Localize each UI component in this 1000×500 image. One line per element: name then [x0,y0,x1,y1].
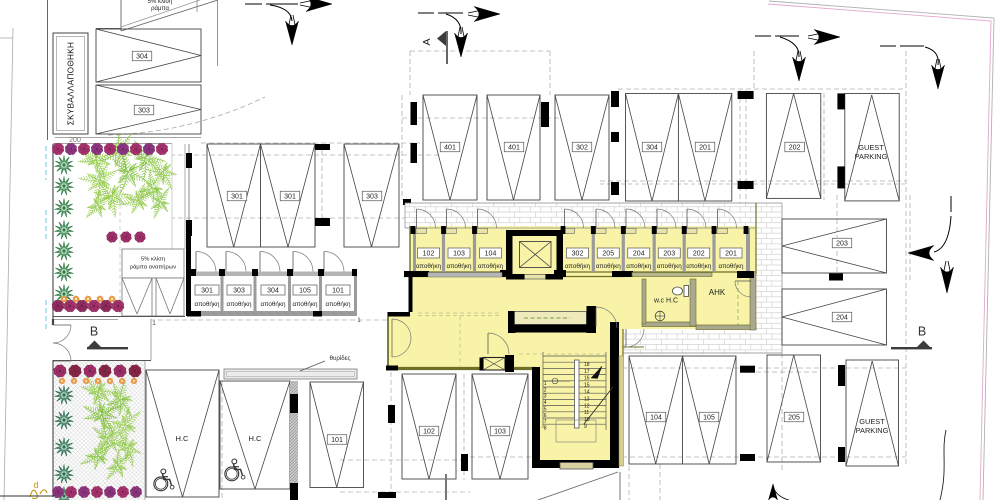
svg-text:5: 5 [544,406,547,412]
svg-text:8: 8 [544,425,547,431]
svg-text:αποθήκη: αποθήκη [596,263,622,270]
svg-text:A: A [421,38,433,45]
svg-text:ΣΚΥΒΑΛΛΑΠΟΘΗΚΗ: ΣΚΥΒΑΛΛΑΠΟΘΗΚΗ [67,42,76,125]
svg-text:103: 103 [494,429,506,436]
svg-text:401: 401 [444,145,456,152]
svg-text:303: 303 [138,108,150,115]
svg-text:203: 203 [836,241,848,248]
svg-text:14: 14 [584,390,590,396]
svg-text:θυρίδες: θυρίδες [330,355,351,362]
svg-text:4: 4 [544,400,547,406]
svg-text:H.C: H.C [176,434,190,443]
svg-text:6: 6 [544,413,547,419]
svg-text:203: 203 [663,251,675,258]
svg-text:104: 104 [650,415,662,422]
svg-text:104: 104 [485,251,497,258]
svg-text:103: 103 [453,251,465,258]
svg-text:9: 9 [584,424,587,430]
svg-text:PARKING: PARKING [855,152,888,161]
svg-text:5% κλίση: 5% κλίση [141,257,165,263]
svg-text:d: d [33,480,38,490]
svg-text:105: 105 [703,415,715,422]
svg-text:αποθήκη: αποθήκη [292,301,318,308]
svg-text:201: 201 [699,145,711,152]
svg-text:15: 15 [584,383,590,389]
svg-text:101: 101 [332,288,344,295]
svg-text:αποθήκη: αποθήκη [194,301,220,308]
svg-text:αποθήκη: αποθήκη [718,263,744,270]
svg-text:AHK: AHK [709,288,726,297]
svg-text:304: 304 [267,288,279,295]
svg-text:301: 301 [231,194,243,201]
svg-text:11: 11 [584,410,589,416]
svg-text:B: B [90,325,98,339]
svg-text:αποθήκη: αποθήκη [260,301,286,308]
svg-text:304: 304 [646,145,658,152]
svg-text:204: 204 [633,251,645,258]
svg-text:202: 202 [789,145,801,152]
svg-text:w.c H.C: w.c H.C [653,298,678,305]
svg-text:301: 301 [201,288,213,295]
svg-text:205: 205 [788,415,800,422]
svg-text:7: 7 [544,419,547,425]
svg-text:204: 204 [836,315,848,322]
svg-text:αποθήκη: αποθήκη [226,301,252,308]
svg-text:13: 13 [584,396,590,402]
svg-text:αποθήκη: αποθήκη [686,263,712,270]
svg-text:5% κλίση: 5% κλίση [148,0,173,5]
svg-text:αποθήκη: αποθήκη [446,263,472,270]
svg-text:αποθήκη: αποθήκη [325,301,351,308]
svg-text:105: 105 [299,288,311,295]
svg-text:102: 102 [423,429,435,436]
svg-text:101: 101 [331,437,343,444]
svg-text:17: 17 [584,369,590,375]
svg-text:αποθήκη: αποθήκη [416,263,442,270]
svg-text:GUEST: GUEST [859,417,885,426]
svg-text:αποθήκη: αποθήκη [657,263,683,270]
svg-text:B: B [918,325,926,339]
svg-text:PARKING: PARKING [856,426,889,435]
svg-text:201: 201 [725,251,737,258]
svg-text:302: 302 [572,251,584,258]
svg-text:202: 202 [693,251,705,258]
svg-text:2: 2 [544,387,547,393]
svg-text:205: 205 [602,251,614,258]
svg-text:18: 18 [584,362,590,368]
svg-text:αποθήκη: αποθήκη [565,263,591,270]
svg-text:GUEST: GUEST [858,143,884,152]
svg-text:3: 3 [544,394,547,400]
svg-text:ράμπα αναπήρων: ράμπα αναπήρων [130,264,177,271]
svg-text:200: 200 [69,137,81,144]
svg-text:αποθήκη: αποθήκη [626,263,652,270]
svg-text:301: 301 [284,194,296,201]
svg-text:302: 302 [576,145,588,152]
svg-text:304: 304 [136,54,148,61]
svg-text:401: 401 [508,145,520,152]
svg-text:303: 303 [233,288,245,295]
svg-text:1: 1 [544,381,547,387]
svg-text:102: 102 [423,251,435,258]
svg-text:303: 303 [366,194,378,201]
svg-text:H.C: H.C [249,434,263,443]
svg-text:12: 12 [584,403,590,409]
svg-text:αποθήκη: αποθήκη [478,263,504,270]
svg-text:ράμπα: ράμπα [151,5,169,12]
svg-text:16: 16 [584,376,590,382]
